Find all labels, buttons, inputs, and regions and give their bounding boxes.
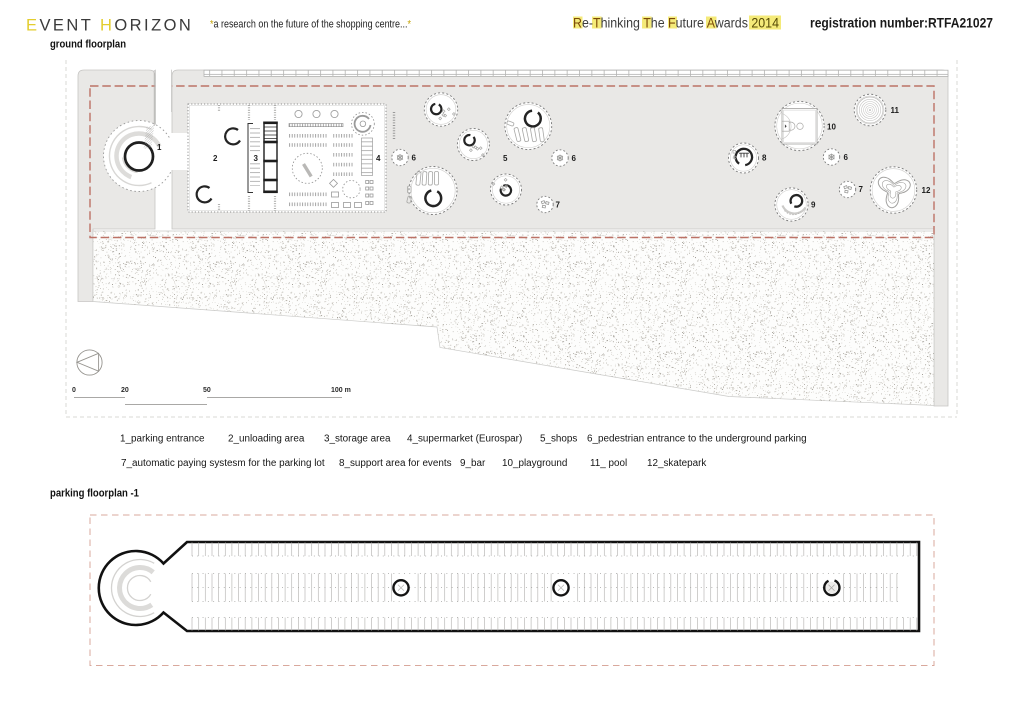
svg-text:3_storage area: 3_storage area — [324, 434, 391, 445]
svg-text:5: 5 — [503, 154, 508, 163]
svg-text:20: 20 — [121, 387, 129, 394]
svg-text:2_unloading area: 2_unloading area — [228, 434, 305, 445]
svg-text:5_shops: 5_shops — [540, 434, 577, 445]
svg-text:10_playground: 10_playground — [502, 458, 567, 469]
svg-text:3: 3 — [254, 154, 259, 163]
svg-text:11_ pool: 11_ pool — [590, 458, 627, 469]
svg-text:6: 6 — [572, 154, 577, 163]
svg-text:0: 0 — [72, 387, 76, 394]
svg-text:6: 6 — [844, 153, 849, 162]
svg-text:1_parking entrance: 1_parking entrance — [120, 434, 205, 445]
svg-text:7: 7 — [556, 201, 561, 210]
svg-text:ground floorplan: ground floorplan — [50, 39, 126, 51]
svg-text:4_supermarket (Eurospar): 4_supermarket (Eurospar) — [407, 434, 522, 445]
svg-text:12: 12 — [922, 186, 931, 195]
svg-text:4: 4 — [376, 154, 381, 163]
svg-text:2: 2 — [213, 154, 218, 163]
svg-text:10: 10 — [827, 123, 836, 132]
svg-text:1: 1 — [157, 143, 162, 152]
svg-text:50: 50 — [203, 387, 211, 394]
svg-text:7_automatic paying systesm for: 7_automatic paying systesm for the parki… — [121, 458, 325, 469]
svg-text:8: 8 — [762, 154, 767, 163]
svg-text:Re-Thinking The Future Awards: Re-Thinking The Future Awards 2014 — [573, 16, 779, 31]
svg-text:6: 6 — [412, 154, 417, 163]
svg-text:11: 11 — [891, 106, 900, 115]
svg-text:EVENT HORIZON: EVENT HORIZON — [26, 17, 193, 35]
svg-text:parking floorplan -1: parking floorplan -1 — [50, 488, 139, 500]
svg-text:registration number:RTFA21027: registration number:RTFA21027 — [810, 15, 993, 31]
svg-text:8_support area for events: 8_support area for events — [339, 458, 452, 469]
svg-text:12_skatepark: 12_skatepark — [647, 458, 706, 469]
svg-text:100 m: 100 m — [331, 387, 351, 394]
svg-text:7: 7 — [859, 185, 864, 194]
svg-text:9_bar: 9_bar — [460, 458, 486, 469]
svg-text:9: 9 — [811, 201, 816, 210]
svg-text:*a research on the future of t: *a research on the future of the shoppin… — [210, 19, 412, 31]
svg-text:6_pedestrian entrance to the u: 6_pedestrian entrance to the underground… — [587, 434, 807, 445]
